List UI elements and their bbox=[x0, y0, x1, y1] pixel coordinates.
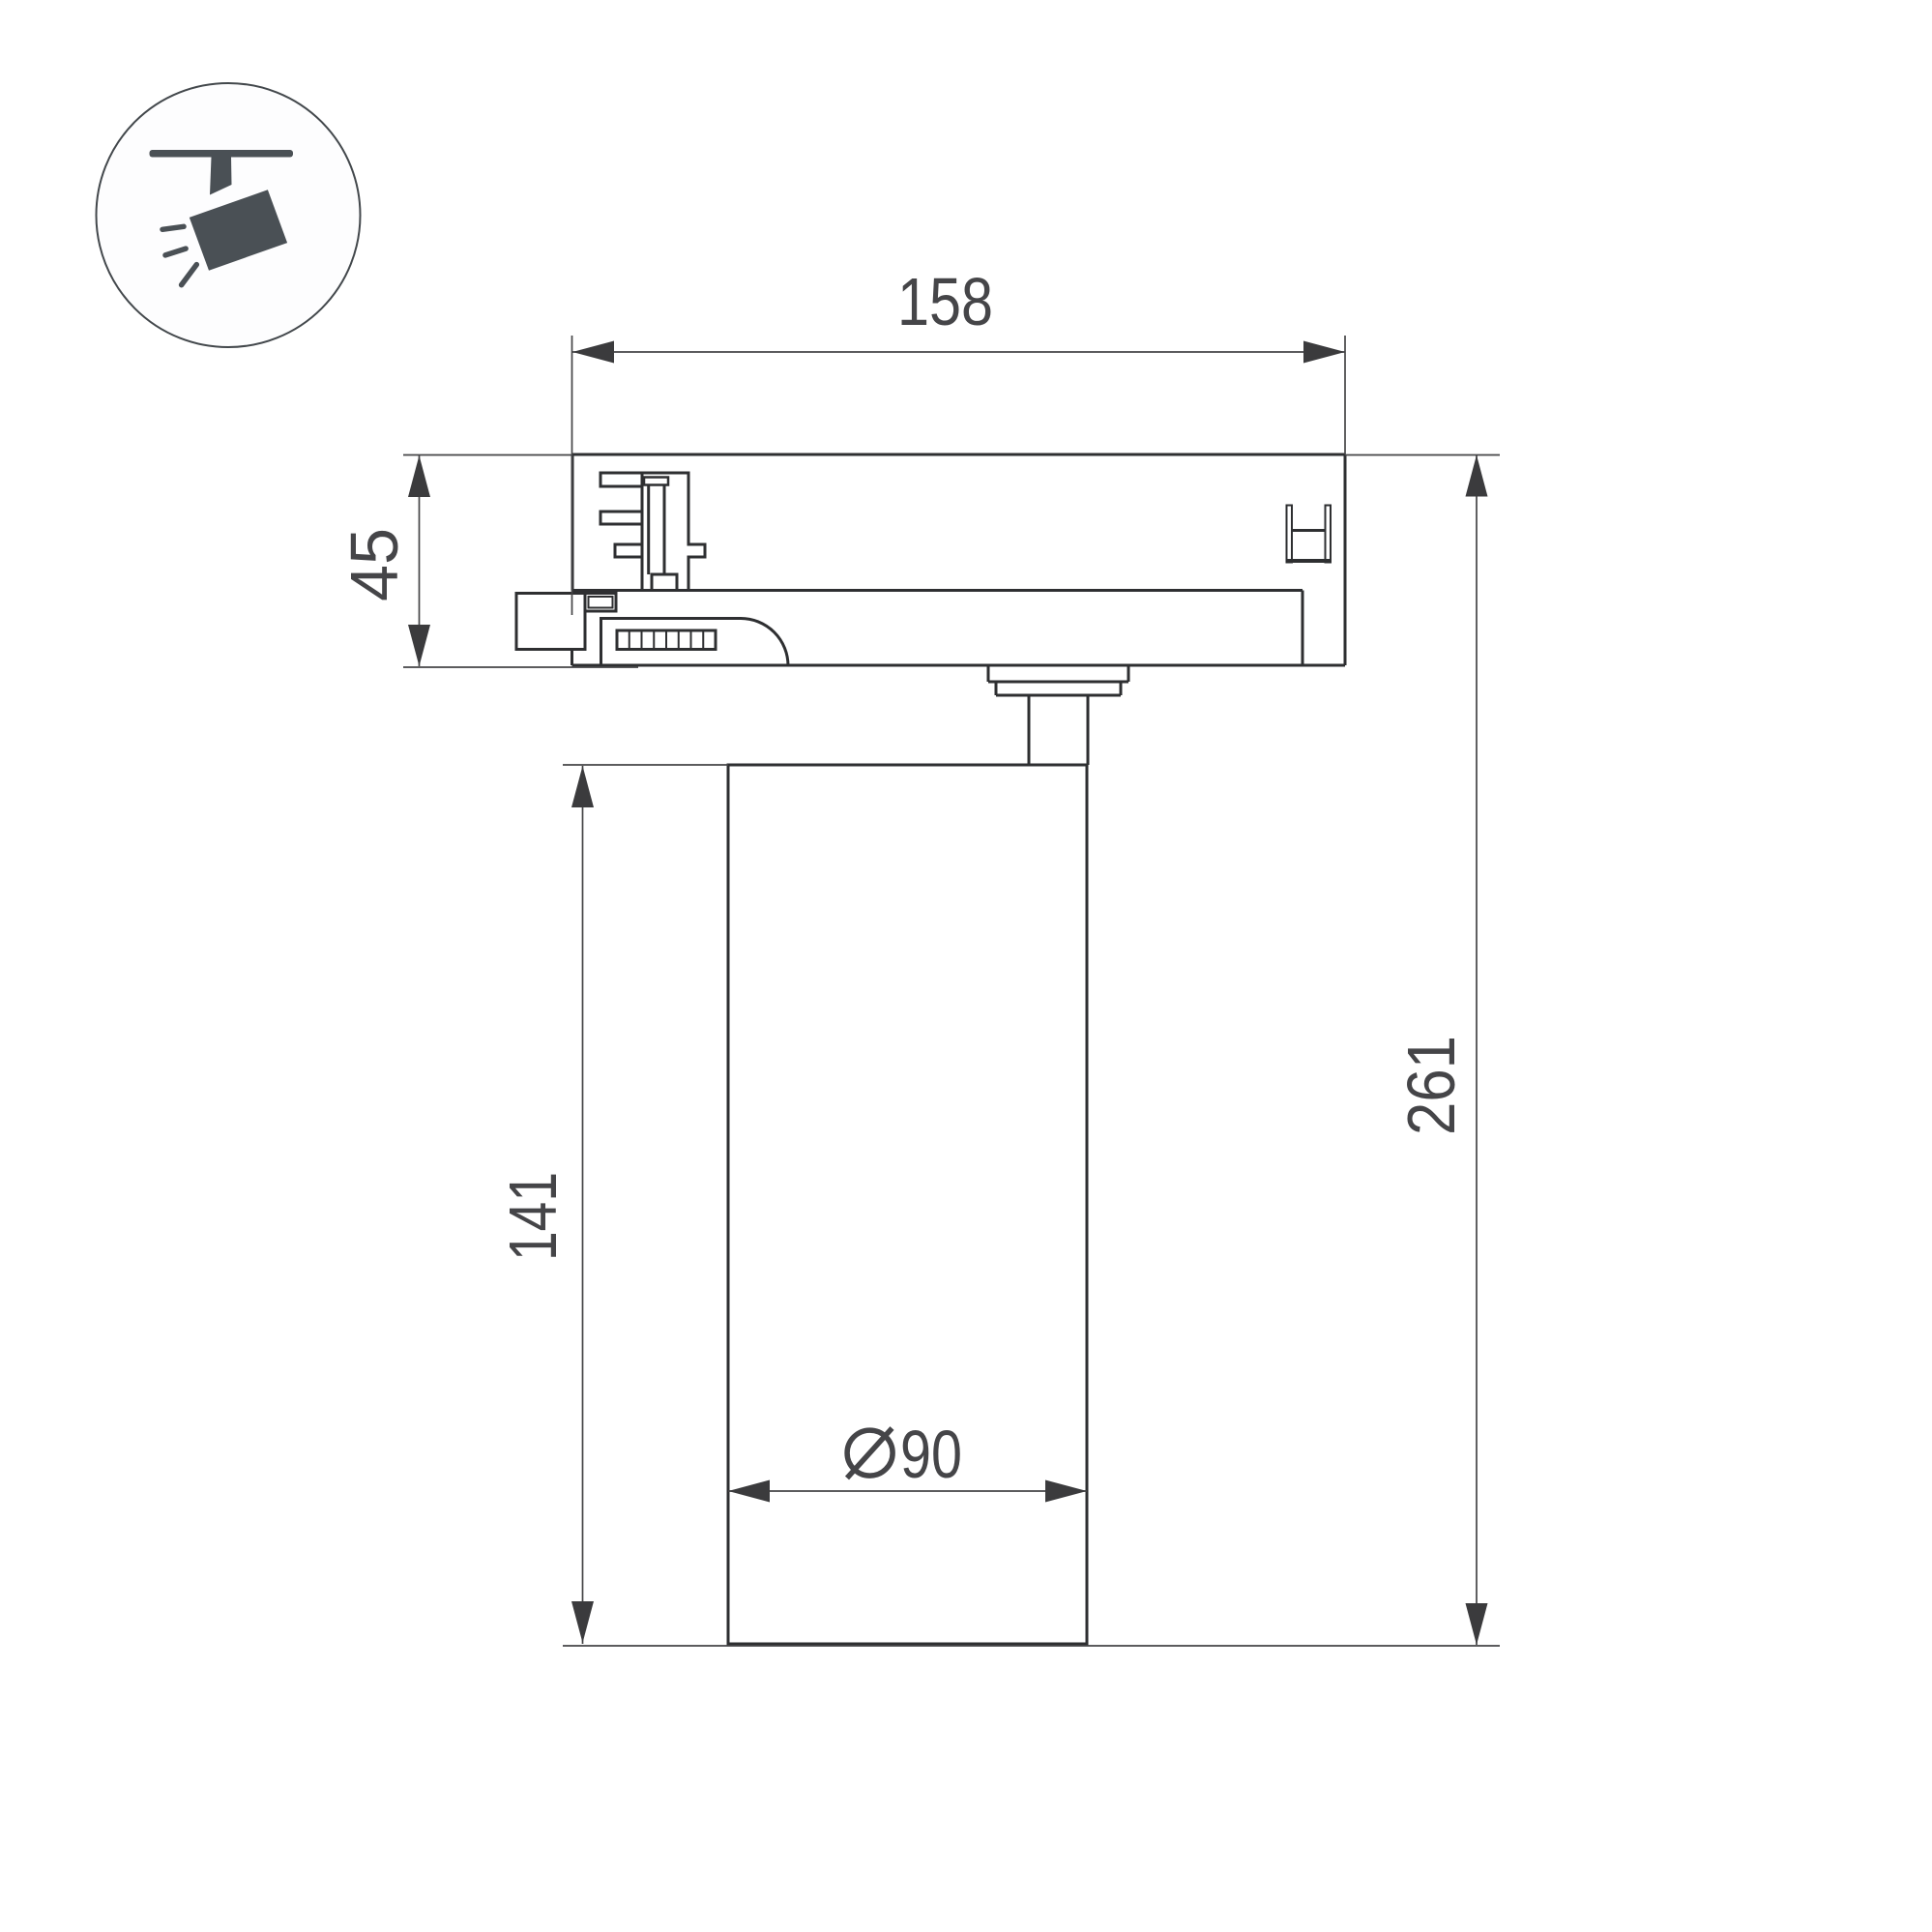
svg-text:261: 261 bbox=[1393, 1036, 1469, 1135]
svg-text:90: 90 bbox=[900, 1417, 962, 1492]
svg-text:141: 141 bbox=[495, 1172, 571, 1261]
svg-text:45: 45 bbox=[337, 528, 412, 601]
svg-text:158: 158 bbox=[897, 264, 993, 339]
